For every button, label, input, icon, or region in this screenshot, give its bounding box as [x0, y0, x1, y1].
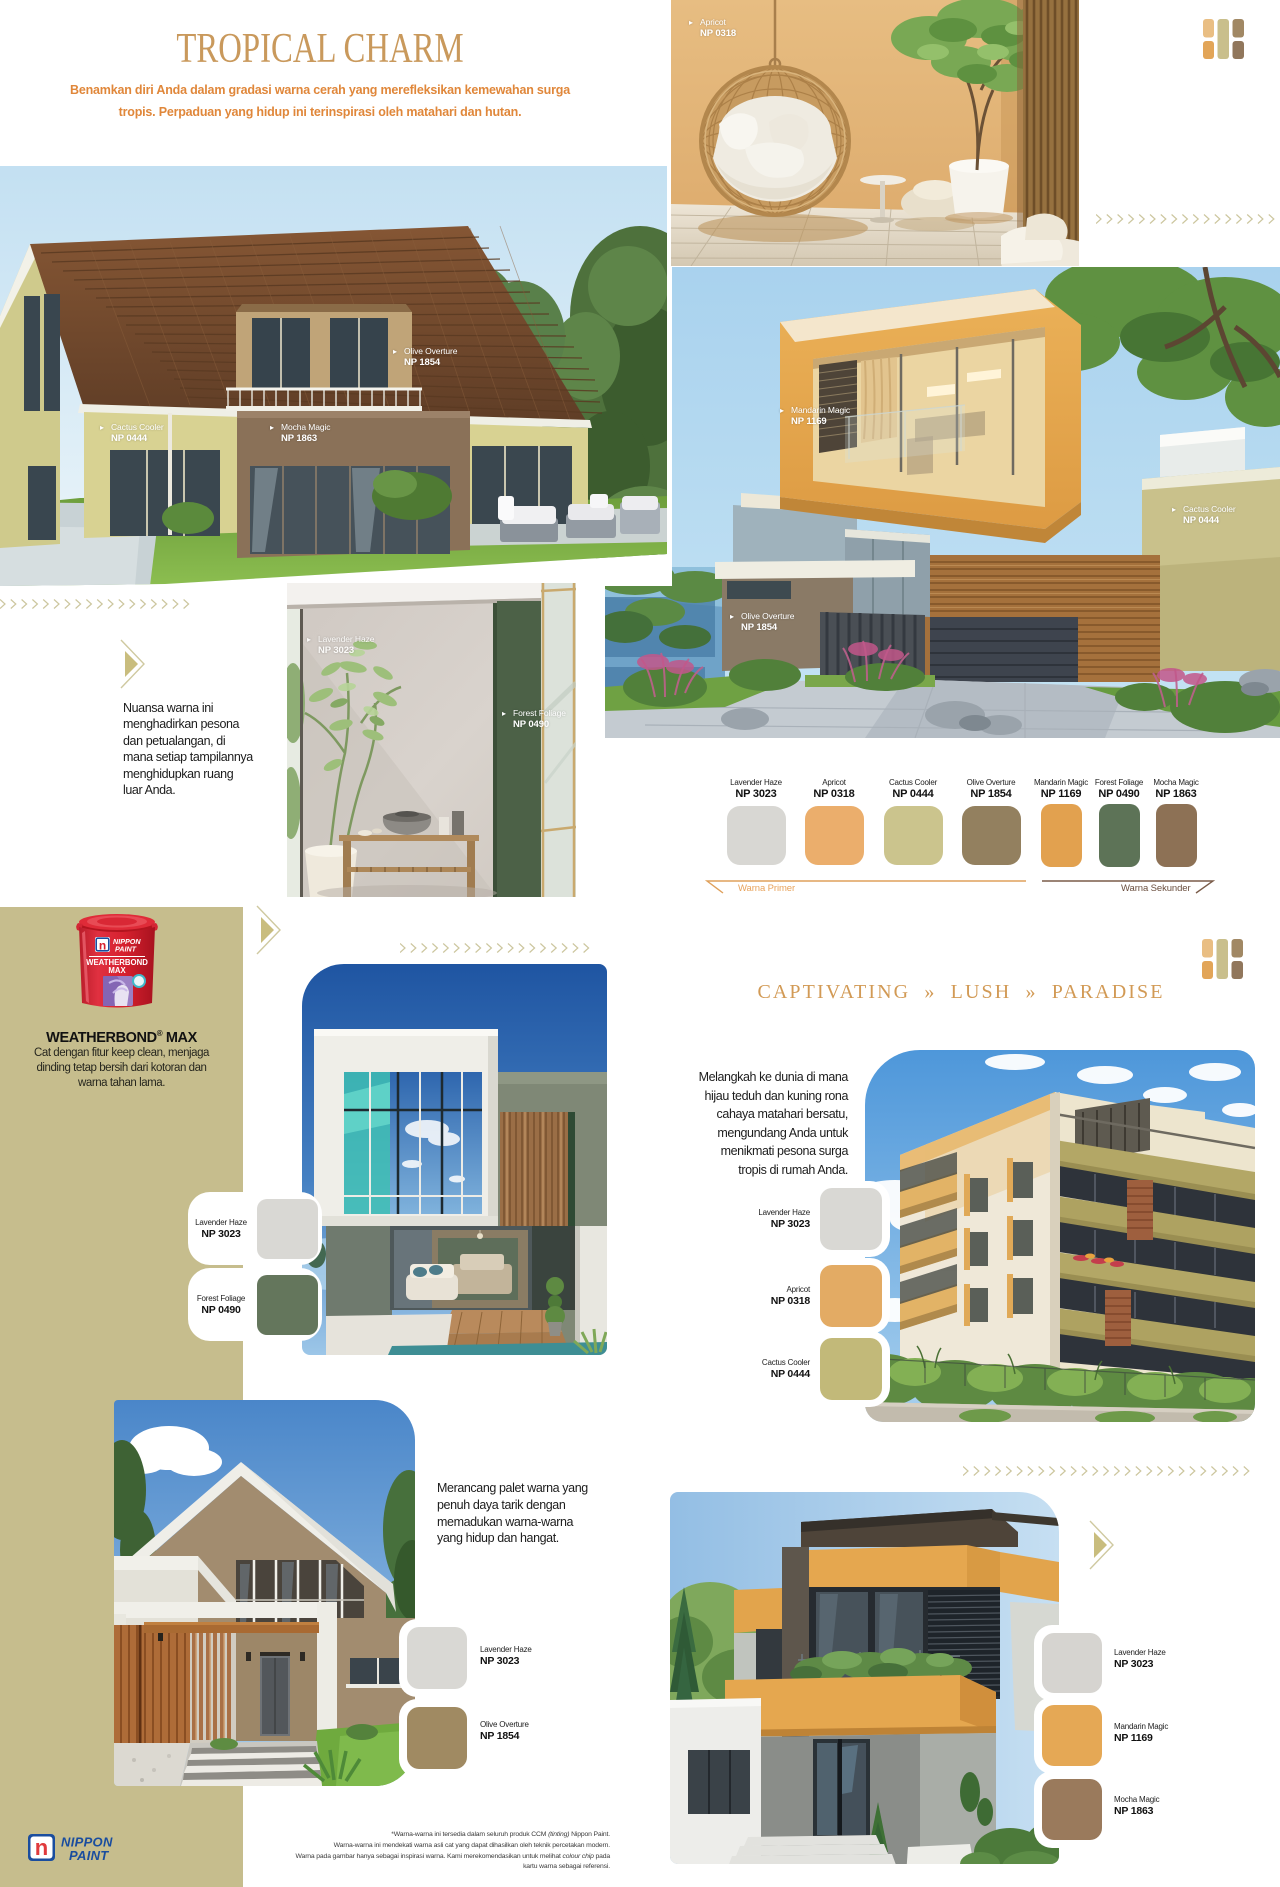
svg-text:n: n [35, 1835, 48, 1860]
svg-text:MAX: MAX [108, 966, 126, 975]
svg-text:n: n [99, 939, 106, 953]
svg-text:PAINT: PAINT [69, 1848, 109, 1863]
svg-text:PAINT: PAINT [115, 945, 137, 954]
